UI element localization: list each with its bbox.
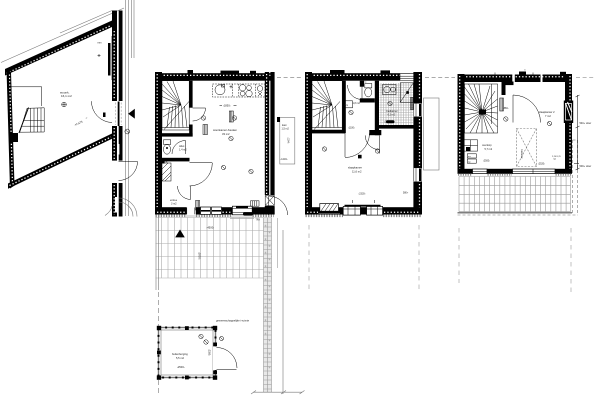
svg-text:overloop: overloop xyxy=(482,144,492,147)
svg-text:slaapkamer 2: slaapkamer 2 xyxy=(539,110,555,114)
svg-text:‹2350›: ‹2350› xyxy=(208,349,211,356)
svg-text:slaapkamer: slaapkamer xyxy=(348,166,362,170)
svg-text:7 m2: 7 m2 xyxy=(545,114,551,118)
svg-text:‹1100›: ‹1100› xyxy=(348,127,355,130)
svg-text:‹1219›: ‹1219› xyxy=(281,158,288,161)
svg-text:‹2330›: ‹2330› xyxy=(359,193,366,196)
svg-text:‹›: ‹› xyxy=(524,70,526,72)
svg-text:‹5000›: ‹5000› xyxy=(198,252,202,260)
svg-text:mm: mm xyxy=(98,42,102,45)
svg-text:1,5 m2: 1,5 m2 xyxy=(282,128,290,131)
svg-text:3 m2: 3 m2 xyxy=(171,203,177,206)
svg-text:‹880›: ‹880› xyxy=(503,108,509,110)
svg-text:kastenw.: kastenw. xyxy=(520,150,523,160)
svg-text:6,2 m2: 6,2 m2 xyxy=(388,114,396,117)
svg-text:1,4 m2: 1,4 m2 xyxy=(179,149,187,152)
svg-text:33 m2: 33 m2 xyxy=(222,132,230,136)
svg-text:500+ vloer: 500+ vloer xyxy=(580,165,592,168)
svg-text:buitenberging: buitenberging xyxy=(172,352,188,356)
svg-text:580+: 580+ xyxy=(403,193,409,195)
svg-text:5,5 m2: 5,5 m2 xyxy=(176,356,184,360)
svg-text:‹2520›: ‹2520› xyxy=(538,163,545,166)
svg-text:540+ vloer: 540+ vloer xyxy=(580,122,592,125)
svg-text:‹2500›: ‹2500› xyxy=(177,365,185,369)
svg-text:woonkamer /keuken: woonkamer /keuken xyxy=(213,128,238,132)
svg-text:‹4500›: ‹4500› xyxy=(207,226,215,230)
svg-text:11,6 m2: 11,6 m2 xyxy=(352,170,362,174)
svg-text:TRA: TRA xyxy=(256,219,261,222)
svg-text:wm: wm xyxy=(345,105,349,107)
svg-text:‹1164›: ‹1164› xyxy=(287,137,289,144)
svg-text:‹1850›: ‹1850› xyxy=(223,104,231,108)
svg-text:16,1 m2: 16,1 m2 xyxy=(61,94,72,98)
svg-text:‹2500›: ‹2500› xyxy=(483,160,490,163)
svg-text:gemeenschappelijke i-ruimte: gemeenschappelijke i-ruimte xyxy=(216,319,250,323)
svg-text:1,8 m2: 1,8 m2 xyxy=(353,102,361,105)
svg-text:5,7 m2: 5,7 m2 xyxy=(485,148,493,151)
